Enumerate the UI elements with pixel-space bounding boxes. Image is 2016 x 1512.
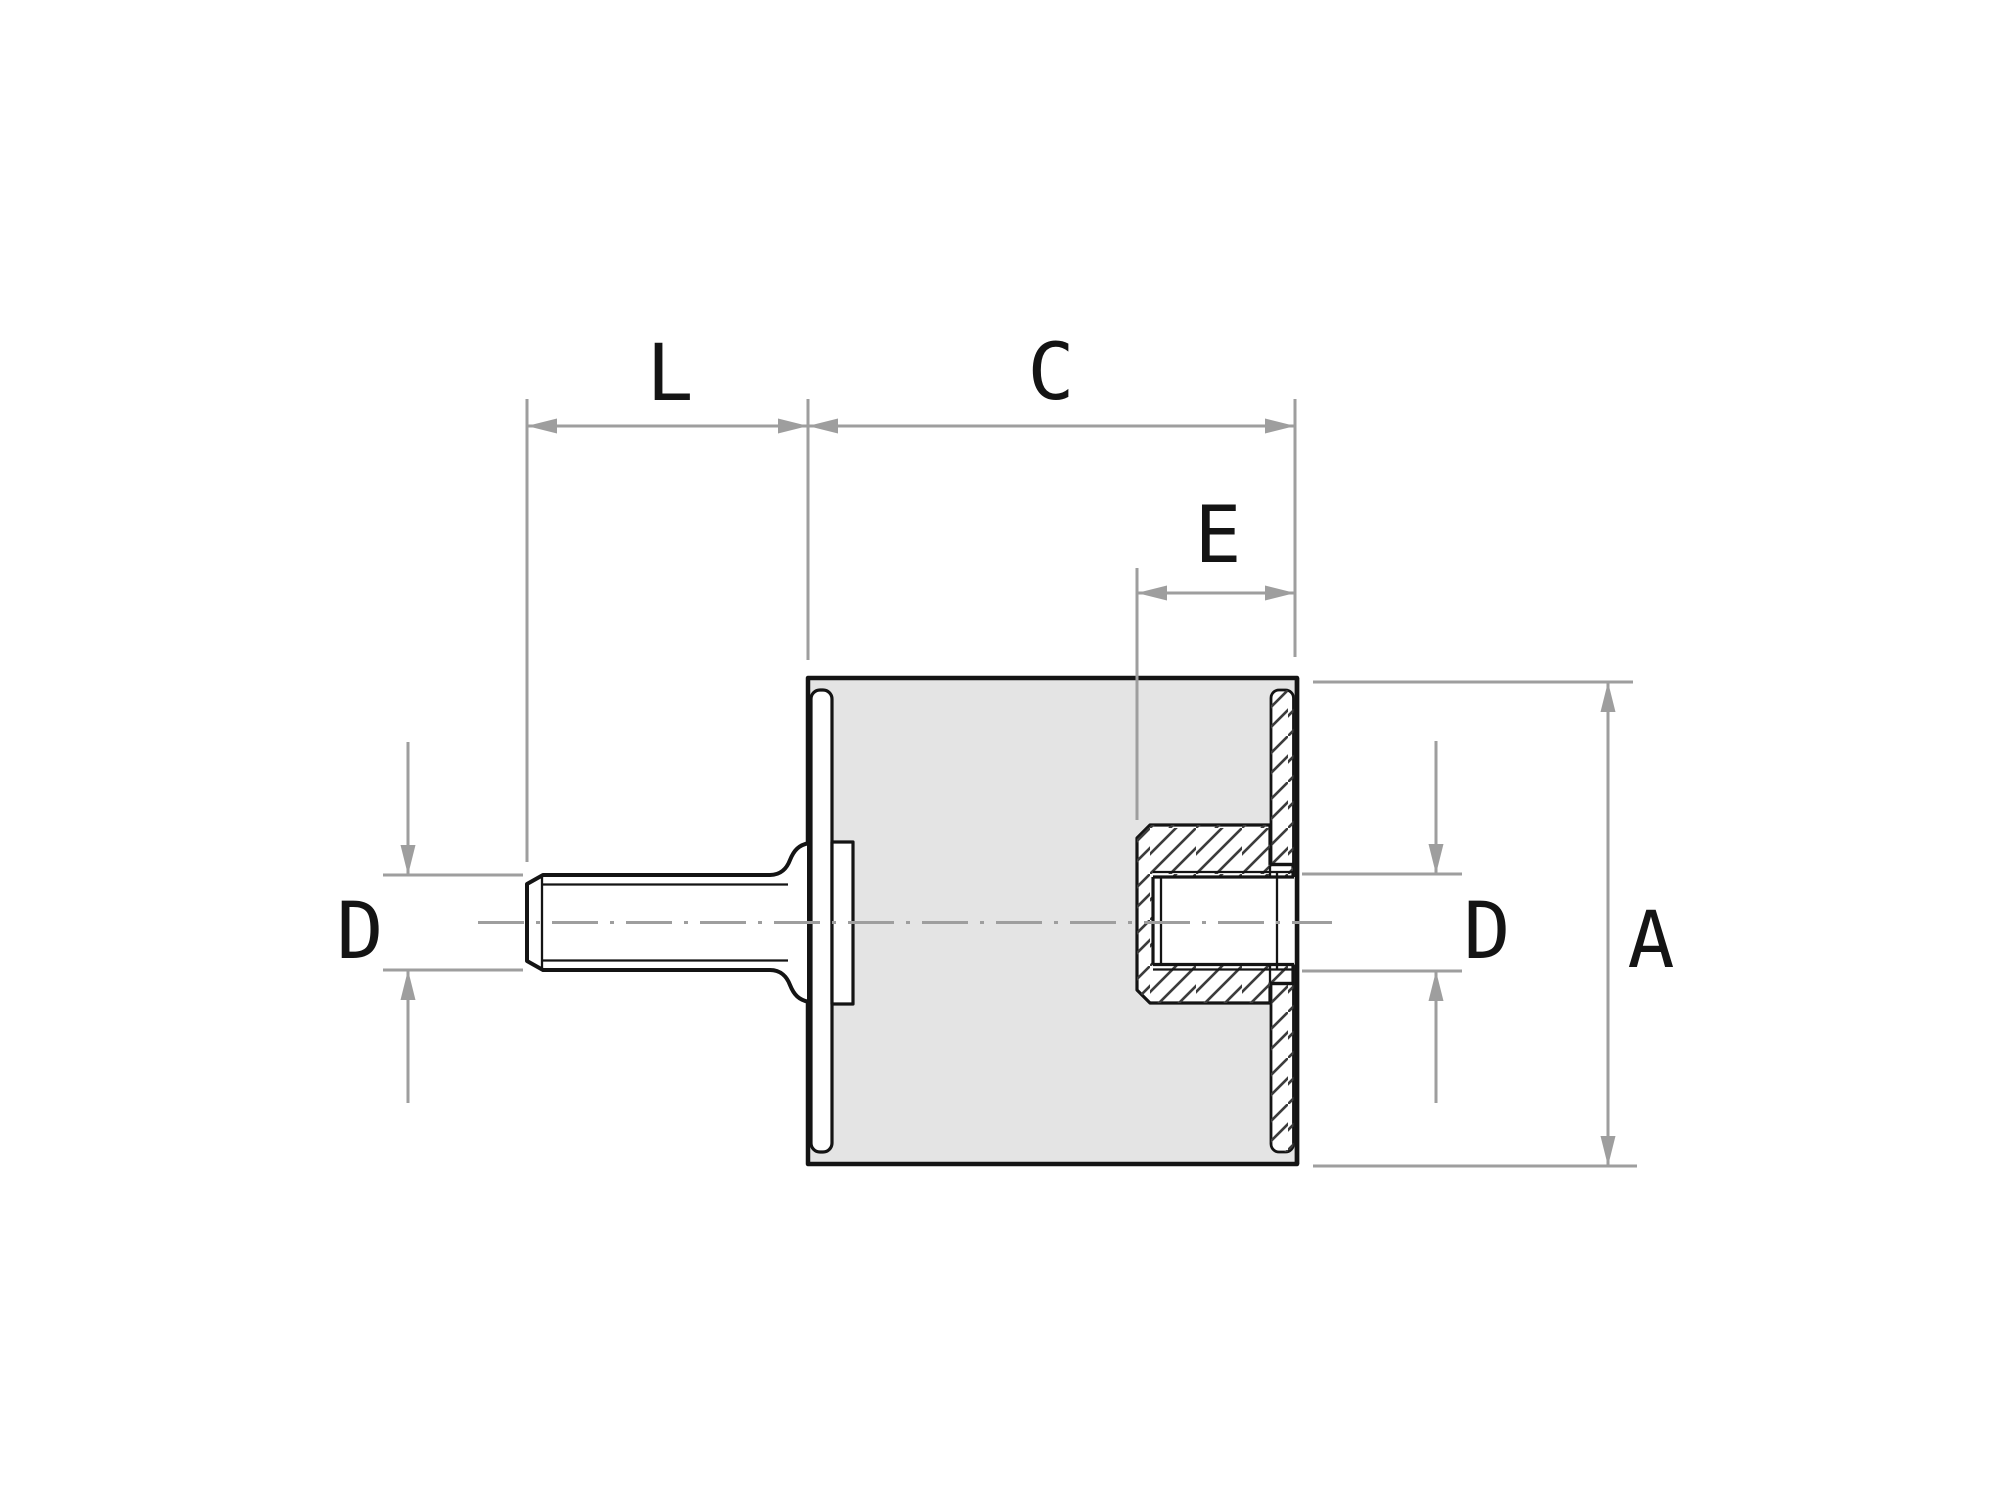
technical-drawing-canvas: L C E D D A: [0, 0, 2016, 1512]
arrow-right-icon: [1265, 586, 1295, 601]
tapped-bore: [1153, 877, 1295, 965]
arrow-left-icon: [1137, 586, 1167, 601]
arrow-up-icon: [401, 970, 416, 1000]
dim-label-l: L: [647, 329, 694, 419]
arrow-down-icon: [401, 845, 416, 875]
dim-label-e: E: [1195, 491, 1242, 581]
dim-label-c: C: [1028, 328, 1075, 418]
dim-label-d-right: D: [1464, 887, 1511, 977]
arrow-down-icon: [1601, 1136, 1616, 1166]
mount-section-drawing: L C E D D A: [0, 0, 2016, 1512]
dim-label-a: A: [1628, 896, 1675, 986]
dim-label-d-left: D: [337, 887, 384, 977]
arrow-left-icon: [808, 419, 838, 434]
arrow-right-icon: [778, 419, 808, 434]
arrow-left-icon: [527, 419, 557, 434]
arrow-up-icon: [1601, 682, 1616, 712]
arrow-up-icon: [1429, 971, 1444, 1001]
arrow-down-icon: [1429, 844, 1444, 874]
arrow-right-icon: [1265, 419, 1295, 434]
